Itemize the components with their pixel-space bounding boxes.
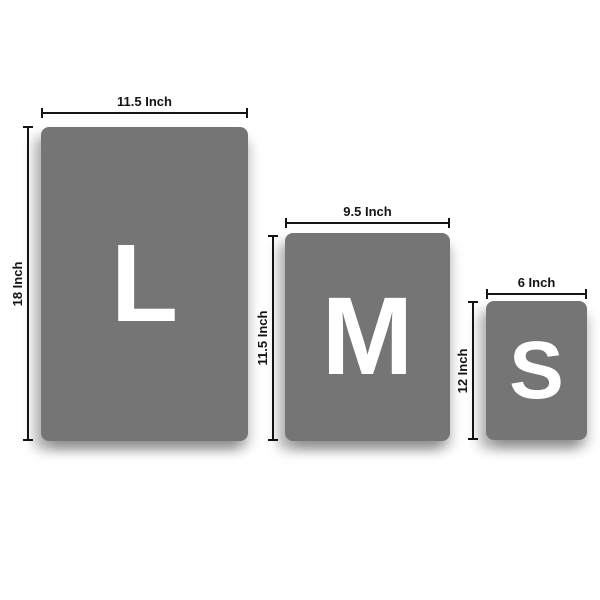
height-dimension-medium: 11.5 Inch [272,236,274,440]
width-dimension-medium: 9.5 Inch [285,222,450,224]
size-board-medium: M [285,233,450,441]
width-dimension-small: 6 Inch [486,293,587,295]
size-letter-medium: M [322,282,414,392]
width-label-large: 11.5 Inch [41,94,248,109]
height-label-medium: 11.5 Inch [255,311,270,366]
size-board-large: L [41,127,248,441]
size-letter-small: S [509,330,564,412]
height-label-small: 12 Inch [455,348,470,393]
height-dimension-small: 12 Inch [472,302,474,439]
size-board-small: S [486,301,587,440]
size-letter-large: L [111,229,178,339]
width-dimension-large: 11.5 Inch [41,112,248,114]
height-label-large: 18 Inch [10,261,25,306]
height-dimension-large: 18 Inch [27,127,29,440]
size-chart-diagram: 11.5 Inch 18 Inch L 9.5 Inch 11.5 Inch M… [0,0,600,600]
width-label-medium: 9.5 Inch [285,204,450,219]
width-label-small: 6 Inch [486,275,587,290]
